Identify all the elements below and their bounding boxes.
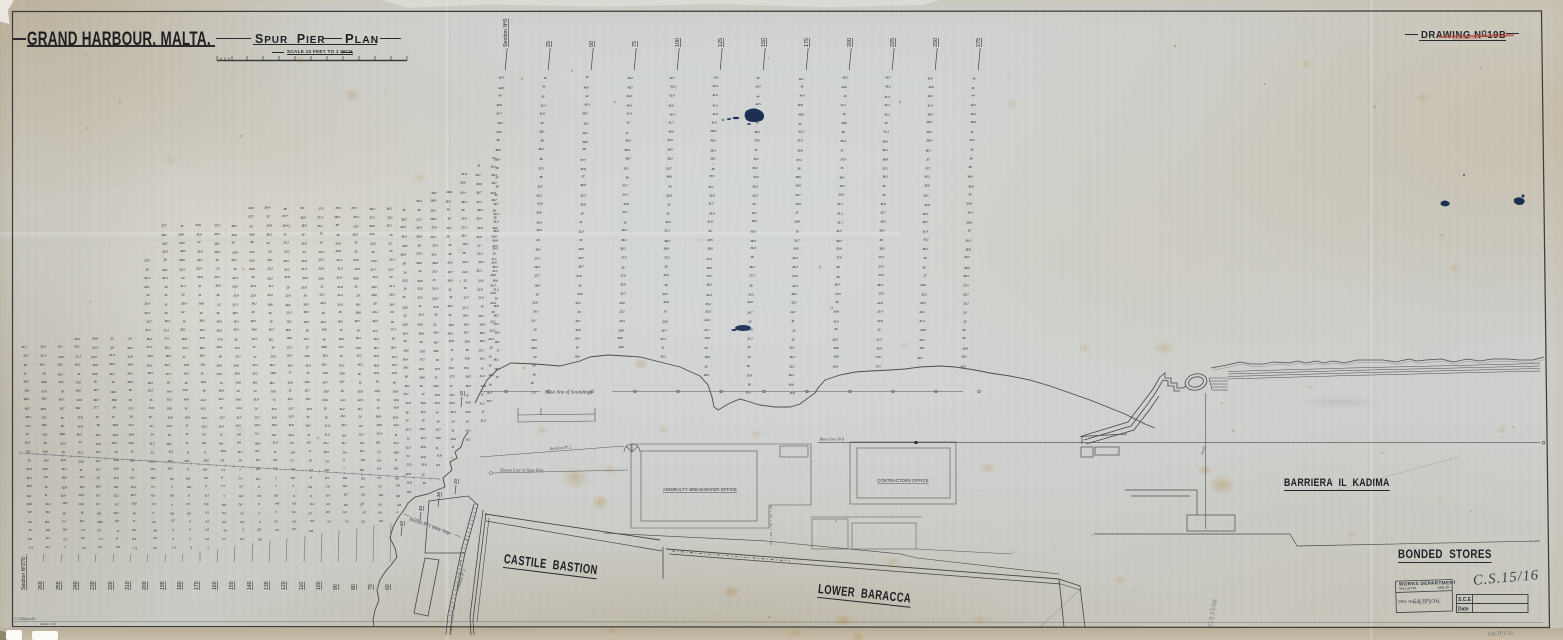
svg-text:16.7: 16.7	[93, 398, 99, 402]
svg-text:34.7: 34.7	[794, 193, 801, 197]
svg-text:16: 16	[166, 381, 170, 385]
svg-text:15.5: 15.5	[434, 401, 440, 405]
svg-text:14: 14	[253, 389, 257, 393]
svg-text:26.1: 26.1	[213, 242, 220, 246]
svg-text:26.1: 26.1	[161, 242, 168, 246]
svg-text:9.8: 9.8	[407, 490, 411, 494]
svg-text:33.4: 33.4	[966, 211, 973, 215]
svg-text:19.0: 19.0	[462, 313, 468, 317]
svg-text:13.6: 13.6	[357, 389, 363, 393]
svg-text:11.4: 11.4	[393, 441, 399, 445]
svg-text:18.3: 18.3	[303, 310, 309, 314]
svg-text:10.7: 10.7	[166, 442, 172, 446]
svg-text:5.7: 5.7	[239, 484, 243, 488]
svg-text:17.7: 17.7	[93, 405, 99, 409]
svg-text:44.7: 44.7	[754, 85, 761, 89]
svg-text:20.1: 20.1	[916, 356, 923, 360]
svg-text:22.7: 22.7	[22, 353, 29, 357]
svg-text:24: 24	[267, 249, 272, 253]
svg-text:17: 17	[449, 384, 453, 388]
svg-text:7.3: 7.3	[152, 502, 156, 506]
svg-text:15.9: 15.9	[373, 354, 379, 358]
svg-text:30: 30	[878, 238, 883, 242]
svg-text:9.9: 9.9	[237, 440, 241, 444]
svg-text:43: 43	[842, 94, 847, 98]
svg-text:2.8: 2.8	[308, 529, 313, 533]
svg-text:31: 31	[401, 208, 406, 212]
svg-text:11.3: 11.3	[376, 432, 382, 436]
svg-text:17.0: 17.0	[216, 372, 222, 376]
svg-text:27.9: 27.9	[619, 274, 626, 278]
svg-text:21.3: 21.3	[488, 329, 495, 333]
svg-text:15.2: 15.2	[252, 372, 258, 376]
svg-text:25.2: 25.2	[704, 302, 711, 306]
svg-text:26: 26	[663, 283, 668, 287]
svg-text:3.4: 3.4	[377, 511, 382, 515]
svg-text:15: 15	[288, 389, 292, 393]
svg-text:34.1: 34.1	[750, 211, 757, 215]
svg-text:7.3: 7.3	[186, 502, 190, 506]
svg-text:19.6: 19.6	[321, 328, 327, 332]
svg-text:27.8: 27.8	[194, 223, 201, 227]
svg-text:6.7: 6.7	[81, 536, 85, 540]
svg-text:26: 26	[300, 232, 305, 236]
svg-text:23.8: 23.8	[531, 301, 538, 305]
svg-text:16: 16	[405, 410, 409, 414]
svg-text:44.9: 44.9	[497, 86, 504, 90]
svg-text:11: 11	[308, 433, 311, 437]
svg-text:28.0: 28.0	[429, 217, 436, 221]
svg-text:23: 23	[353, 284, 358, 288]
svg-text:11.5: 11.5	[358, 433, 364, 437]
svg-text:31.0: 31.0	[708, 211, 715, 215]
svg-text:28: 28	[282, 207, 287, 211]
svg-text:18.5: 18.5	[493, 314, 499, 318]
svg-text:12.5: 12.5	[405, 445, 411, 449]
svg-text:28: 28	[334, 223, 339, 227]
svg-text:10.7: 10.7	[79, 485, 85, 489]
svg-text:19: 19	[322, 338, 326, 342]
svg-text:34: 34	[494, 185, 499, 189]
svg-text:36: 36	[796, 167, 801, 171]
svg-text:14: 14	[236, 389, 240, 393]
svg-text:4.2: 4.2	[204, 537, 209, 541]
svg-text:2: 2	[206, 546, 209, 550]
svg-text:13.8: 13.8	[166, 407, 172, 411]
svg-text:42.1: 42.1	[582, 122, 589, 126]
svg-text:14.5: 14.5	[287, 397, 293, 401]
svg-text:6.9: 6.9	[344, 503, 348, 507]
svg-text:37: 37	[753, 148, 758, 152]
svg-text:20: 20	[109, 346, 114, 350]
svg-text:11.7: 11.7	[149, 442, 155, 446]
svg-text:24.5: 24.5	[161, 249, 168, 253]
svg-text:14.7: 14.7	[128, 423, 134, 427]
svg-text:3: 3	[171, 537, 174, 541]
svg-text:14.9: 14.9	[304, 354, 310, 358]
svg-text:1.7: 1.7	[222, 537, 226, 541]
svg-text:23: 23	[109, 337, 114, 341]
svg-text:22.7: 22.7	[145, 320, 152, 324]
svg-text:25: 25	[387, 241, 392, 245]
svg-text:9.6: 9.6	[219, 442, 223, 446]
svg-text:20.1: 20.1	[788, 365, 795, 369]
svg-text:35.2: 35.2	[881, 167, 888, 171]
svg-text:13.7: 13.7	[219, 415, 225, 419]
svg-text:12.3: 12.3	[130, 485, 136, 489]
svg-text:21.8: 21.8	[335, 276, 342, 280]
svg-text:10: 10	[308, 459, 312, 463]
svg-text:11.6: 11.6	[166, 424, 172, 428]
svg-text:17: 17	[288, 371, 292, 375]
svg-text:17.4: 17.4	[391, 355, 397, 359]
svg-text:7: 7	[275, 476, 277, 480]
svg-text:14.6: 14.6	[235, 398, 241, 402]
svg-text:7.5: 7.5	[377, 476, 381, 480]
svg-text:6.1: 6.1	[343, 510, 347, 514]
svg-text:39.8: 39.8	[581, 140, 588, 144]
svg-text:36: 36	[494, 166, 499, 170]
svg-text:20.5: 20.5	[302, 303, 309, 307]
svg-text:17: 17	[252, 345, 256, 349]
svg-text:13.2: 13.2	[465, 410, 471, 414]
svg-text:17.3: 17.3	[286, 346, 292, 350]
svg-text:9.2: 9.2	[360, 441, 364, 445]
svg-text:26: 26	[144, 268, 149, 272]
svg-text:19.2: 19.2	[373, 337, 379, 341]
svg-text:17: 17	[306, 371, 310, 375]
svg-text:17: 17	[111, 415, 115, 419]
svg-text:20.8: 20.8	[919, 328, 926, 332]
svg-text:34.2: 34.2	[535, 193, 542, 197]
svg-text:9.5: 9.5	[115, 519, 119, 523]
svg-text:16: 16	[488, 383, 492, 387]
svg-text:20.9: 20.9	[91, 372, 98, 376]
svg-text:21.2: 21.2	[746, 336, 753, 340]
svg-text:37: 37	[494, 176, 499, 180]
svg-text:38.6: 38.6	[623, 148, 630, 152]
svg-text:18: 18	[746, 364, 750, 368]
svg-text:175: 175	[804, 38, 810, 47]
svg-text:14.6: 14.6	[235, 381, 241, 385]
svg-text:43.3: 43.3	[669, 84, 676, 88]
svg-text:23.9: 23.9	[334, 241, 341, 245]
svg-text:14.6: 14.6	[391, 371, 397, 375]
svg-text:19.5: 19.5	[57, 372, 63, 376]
svg-text:8: 8	[293, 494, 295, 498]
svg-text:15.4: 15.4	[745, 390, 751, 394]
svg-text:16.8: 16.8	[59, 432, 65, 436]
svg-text:70: 70	[368, 584, 374, 590]
svg-text:130: 130	[264, 581, 270, 590]
svg-text:17: 17	[182, 355, 186, 359]
svg-text:Section Nº0: Section Nº0	[503, 19, 509, 47]
svg-text:20.4: 20.4	[371, 310, 378, 314]
svg-text:16: 16	[60, 424, 64, 428]
svg-text:23: 23	[163, 285, 168, 289]
svg-text:17.1: 17.1	[164, 337, 170, 341]
svg-text:7.1: 7.1	[221, 468, 225, 472]
svg-text:14: 14	[27, 459, 31, 463]
svg-text:25: 25	[388, 249, 393, 253]
svg-text:14.2: 14.2	[200, 406, 206, 410]
svg-text:150: 150	[761, 38, 767, 47]
svg-text:12.8: 12.8	[357, 398, 363, 402]
svg-text:31.6: 31.6	[536, 201, 543, 205]
svg-text:33.8: 33.8	[579, 203, 586, 207]
svg-text:27.2: 27.2	[350, 206, 357, 210]
svg-text:29.7: 29.7	[577, 256, 584, 260]
svg-text:21.8: 21.8	[126, 354, 133, 358]
svg-text:6.7: 6.7	[46, 536, 50, 540]
svg-text:20: 20	[389, 310, 394, 314]
svg-text:20.5: 20.5	[56, 362, 63, 366]
svg-text:11.4: 11.4	[323, 441, 329, 445]
svg-text:210: 210	[125, 581, 131, 590]
svg-text:19: 19	[182, 320, 186, 324]
svg-text:32: 32	[666, 203, 671, 207]
svg-text:38: 38	[840, 130, 845, 134]
svg-text:9: 9	[343, 459, 345, 463]
svg-text:14.0: 14.0	[60, 458, 66, 462]
svg-text:22: 22	[402, 314, 407, 318]
svg-text:230: 230	[90, 581, 96, 590]
svg-text:6.5: 6.5	[170, 494, 174, 498]
svg-text:20.0: 20.0	[416, 323, 423, 327]
svg-text:35.7: 35.7	[665, 167, 672, 171]
svg-text:16: 16	[391, 336, 395, 340]
svg-text:21.3: 21.3	[108, 353, 115, 357]
svg-text:7.0: 7.0	[325, 459, 329, 463]
svg-text:11.4: 11.4	[479, 401, 485, 405]
svg-text:45.2: 45.2	[884, 85, 891, 89]
svg-text:18: 18	[435, 358, 439, 362]
svg-text:19.0: 19.0	[574, 354, 580, 358]
svg-text:22.3: 22.3	[487, 337, 494, 341]
svg-text:11.8: 11.8	[42, 467, 48, 471]
svg-text:12.4: 12.4	[465, 429, 471, 433]
svg-text:19.7: 19.7	[58, 398, 64, 402]
svg-text:24.9: 24.9	[489, 301, 496, 305]
svg-text:24.6: 24.6	[662, 300, 669, 304]
svg-text:8.5: 8.5	[360, 449, 364, 453]
svg-text:17: 17	[496, 349, 500, 353]
svg-text:20.0: 20.0	[126, 380, 133, 384]
svg-text:29.7: 29.7	[963, 255, 970, 259]
svg-text:21.5: 21.5	[161, 276, 168, 280]
svg-text:29.2: 29.2	[620, 228, 627, 232]
svg-text:1.4: 1.4	[172, 545, 176, 549]
svg-text:22: 22	[180, 310, 185, 314]
svg-text:18: 18	[305, 328, 309, 332]
svg-text:11.1: 11.1	[150, 467, 156, 471]
svg-text:25.1: 25.1	[161, 268, 168, 272]
svg-text:15.1: 15.1	[356, 353, 362, 357]
svg-text:40: 40	[539, 121, 544, 125]
svg-text:15.1: 15.1	[95, 433, 101, 437]
svg-text:10.7: 10.7	[150, 476, 156, 480]
svg-text:11.6: 11.6	[26, 467, 32, 471]
svg-text:6.5: 6.5	[151, 493, 155, 497]
svg-text:24.9: 24.9	[231, 251, 238, 255]
svg-text:18.6: 18.6	[419, 376, 425, 380]
svg-text:42: 42	[584, 94, 589, 98]
svg-text:14.1: 14.1	[42, 432, 48, 436]
svg-text:11.1: 11.1	[341, 441, 347, 445]
svg-text:22.3: 22.3	[91, 345, 98, 349]
svg-text:37: 37	[925, 157, 930, 161]
svg-text:36.3: 36.3	[881, 174, 888, 178]
svg-text:45.2: 45.2	[841, 75, 848, 79]
svg-text:12.0: 12.0	[60, 494, 66, 498]
svg-text:17.4: 17.4	[390, 328, 396, 332]
svg-text:8: 8	[310, 476, 312, 480]
svg-text:16.9: 16.9	[216, 345, 222, 349]
svg-text:10: 10	[62, 512, 66, 516]
svg-text:14.2: 14.2	[479, 374, 485, 378]
svg-text:43.0: 43.0	[625, 94, 632, 98]
svg-text:9.7: 9.7	[115, 502, 119, 506]
svg-text:37.1: 37.1	[795, 158, 802, 162]
svg-text:14: 14	[150, 432, 154, 436]
svg-text:9.3: 9.3	[377, 458, 381, 462]
svg-text:25.8: 25.8	[265, 223, 272, 227]
svg-text:16.8: 16.8	[112, 423, 118, 427]
svg-text:30: 30	[416, 208, 421, 212]
svg-text:20: 20	[488, 345, 493, 349]
svg-text:6: 6	[258, 502, 260, 506]
svg-text:33.7: 33.7	[838, 184, 845, 188]
svg-text:12.3: 12.3	[201, 424, 207, 428]
svg-text:16.9: 16.9	[418, 367, 424, 371]
svg-text:15.6: 15.6	[270, 390, 276, 394]
svg-text:36.2: 36.2	[666, 156, 673, 160]
svg-text:18.1: 18.1	[199, 318, 205, 322]
svg-text:9.0: 9.0	[63, 528, 67, 532]
svg-text:8.2: 8.2	[80, 519, 84, 523]
svg-text:23: 23	[476, 243, 481, 247]
svg-text:18.6: 18.6	[110, 390, 116, 394]
svg-text:28.8: 28.8	[429, 199, 436, 203]
svg-text:29.7: 29.7	[400, 217, 407, 221]
svg-text:18.0: 18.0	[433, 349, 439, 353]
svg-text:33.7: 33.7	[536, 185, 543, 189]
svg-text:25.4: 25.4	[475, 217, 482, 221]
svg-text:12.2: 12.2	[288, 433, 294, 437]
svg-text:28: 28	[416, 244, 421, 248]
svg-text:13.8: 13.8	[112, 433, 118, 437]
svg-text:27: 27	[922, 273, 927, 277]
svg-text:17.0: 17.0	[338, 364, 344, 368]
svg-text:7.4: 7.4	[133, 546, 137, 550]
svg-text:6.1: 6.1	[205, 494, 209, 498]
svg-text:9.0: 9.0	[187, 485, 191, 489]
svg-text:20.1: 20.1	[126, 372, 133, 376]
svg-text:13.7: 13.7	[304, 389, 310, 393]
svg-text:12.8: 12.8	[111, 441, 117, 445]
svg-text:24.8: 24.8	[334, 249, 341, 253]
svg-text:8.8: 8.8	[291, 476, 295, 480]
svg-text:42.8: 42.8	[495, 103, 502, 107]
svg-text:34.0: 34.0	[794, 202, 801, 206]
svg-text:39.3: 39.3	[624, 138, 631, 142]
svg-text:13.0: 13.0	[374, 389, 380, 393]
svg-text:27.7: 27.7	[475, 200, 482, 204]
svg-text:7.4: 7.4	[238, 476, 242, 480]
svg-text:29: 29	[446, 216, 451, 220]
svg-text:17.8: 17.8	[355, 346, 361, 350]
svg-text:5: 5	[189, 528, 191, 532]
svg-text:21.2: 21.2	[285, 310, 292, 314]
svg-text:26.9: 26.9	[399, 253, 406, 257]
svg-text:22: 22	[791, 328, 796, 332]
svg-text:45.5: 45.5	[926, 77, 933, 81]
svg-text:14: 14	[25, 432, 29, 436]
svg-text:7.5: 7.5	[97, 529, 101, 533]
svg-text:29.2: 29.2	[791, 256, 798, 260]
svg-text:23.3: 23.3	[431, 286, 438, 290]
svg-text:6.8: 6.8	[379, 493, 383, 497]
svg-text:7.7: 7.7	[151, 485, 155, 489]
svg-text:24.6: 24.6	[832, 310, 839, 314]
svg-text:20: 20	[961, 328, 966, 332]
svg-text:21.9: 21.9	[143, 302, 150, 306]
svg-text:19: 19	[269, 320, 273, 324]
svg-text:28.1: 28.1	[534, 248, 541, 252]
svg-text:39.9: 39.9	[881, 140, 888, 144]
svg-text:8.4: 8.4	[46, 510, 50, 514]
svg-text:10: 10	[167, 433, 171, 437]
svg-text:8.7: 8.7	[170, 477, 174, 481]
svg-text:23.6: 23.6	[214, 284, 221, 288]
svg-text:18.7: 18.7	[433, 340, 439, 344]
svg-text:10.9: 10.9	[393, 451, 399, 455]
svg-text:37: 37	[839, 148, 844, 152]
svg-text:22.6: 22.6	[431, 296, 438, 300]
svg-text:5.7: 5.7	[378, 484, 382, 488]
svg-text:6.4: 6.4	[377, 467, 381, 471]
svg-text:14.9: 14.9	[42, 449, 48, 453]
svg-text:28.3: 28.3	[444, 200, 451, 204]
svg-text:23.7: 23.7	[962, 292, 969, 296]
svg-text:21: 21	[163, 293, 168, 297]
svg-text:13: 13	[61, 450, 65, 454]
svg-text:21.7: 21.7	[462, 295, 469, 299]
svg-text:21: 21	[660, 345, 665, 349]
svg-text:26.0: 26.0	[431, 261, 438, 265]
svg-text:11: 11	[482, 410, 485, 414]
svg-text:22.6: 22.6	[876, 319, 883, 323]
svg-text:27.9: 27.9	[835, 255, 842, 259]
svg-text:9.9: 9.9	[255, 449, 259, 453]
svg-text:11: 11	[452, 429, 455, 433]
svg-text:29.3: 29.3	[535, 228, 542, 232]
svg-text:43.0: 43.0	[667, 104, 674, 108]
svg-text:18.5: 18.5	[338, 337, 344, 341]
svg-text:22: 22	[462, 279, 467, 283]
svg-text:30: 30	[436, 491, 441, 497]
svg-text:12.1: 12.1	[218, 397, 224, 401]
svg-text:33.3: 33.3	[751, 185, 758, 189]
svg-text:17.0: 17.0	[199, 336, 205, 340]
svg-text:32: 32	[707, 229, 712, 233]
svg-text:37.1: 37.1	[708, 174, 715, 178]
svg-text:16.6: 16.6	[23, 397, 29, 401]
svg-text:24.3: 24.3	[430, 252, 437, 256]
svg-text:20.5: 20.5	[831, 337, 838, 341]
svg-text:28.2: 28.2	[963, 266, 970, 270]
svg-text:41.0: 41.0	[710, 121, 717, 125]
